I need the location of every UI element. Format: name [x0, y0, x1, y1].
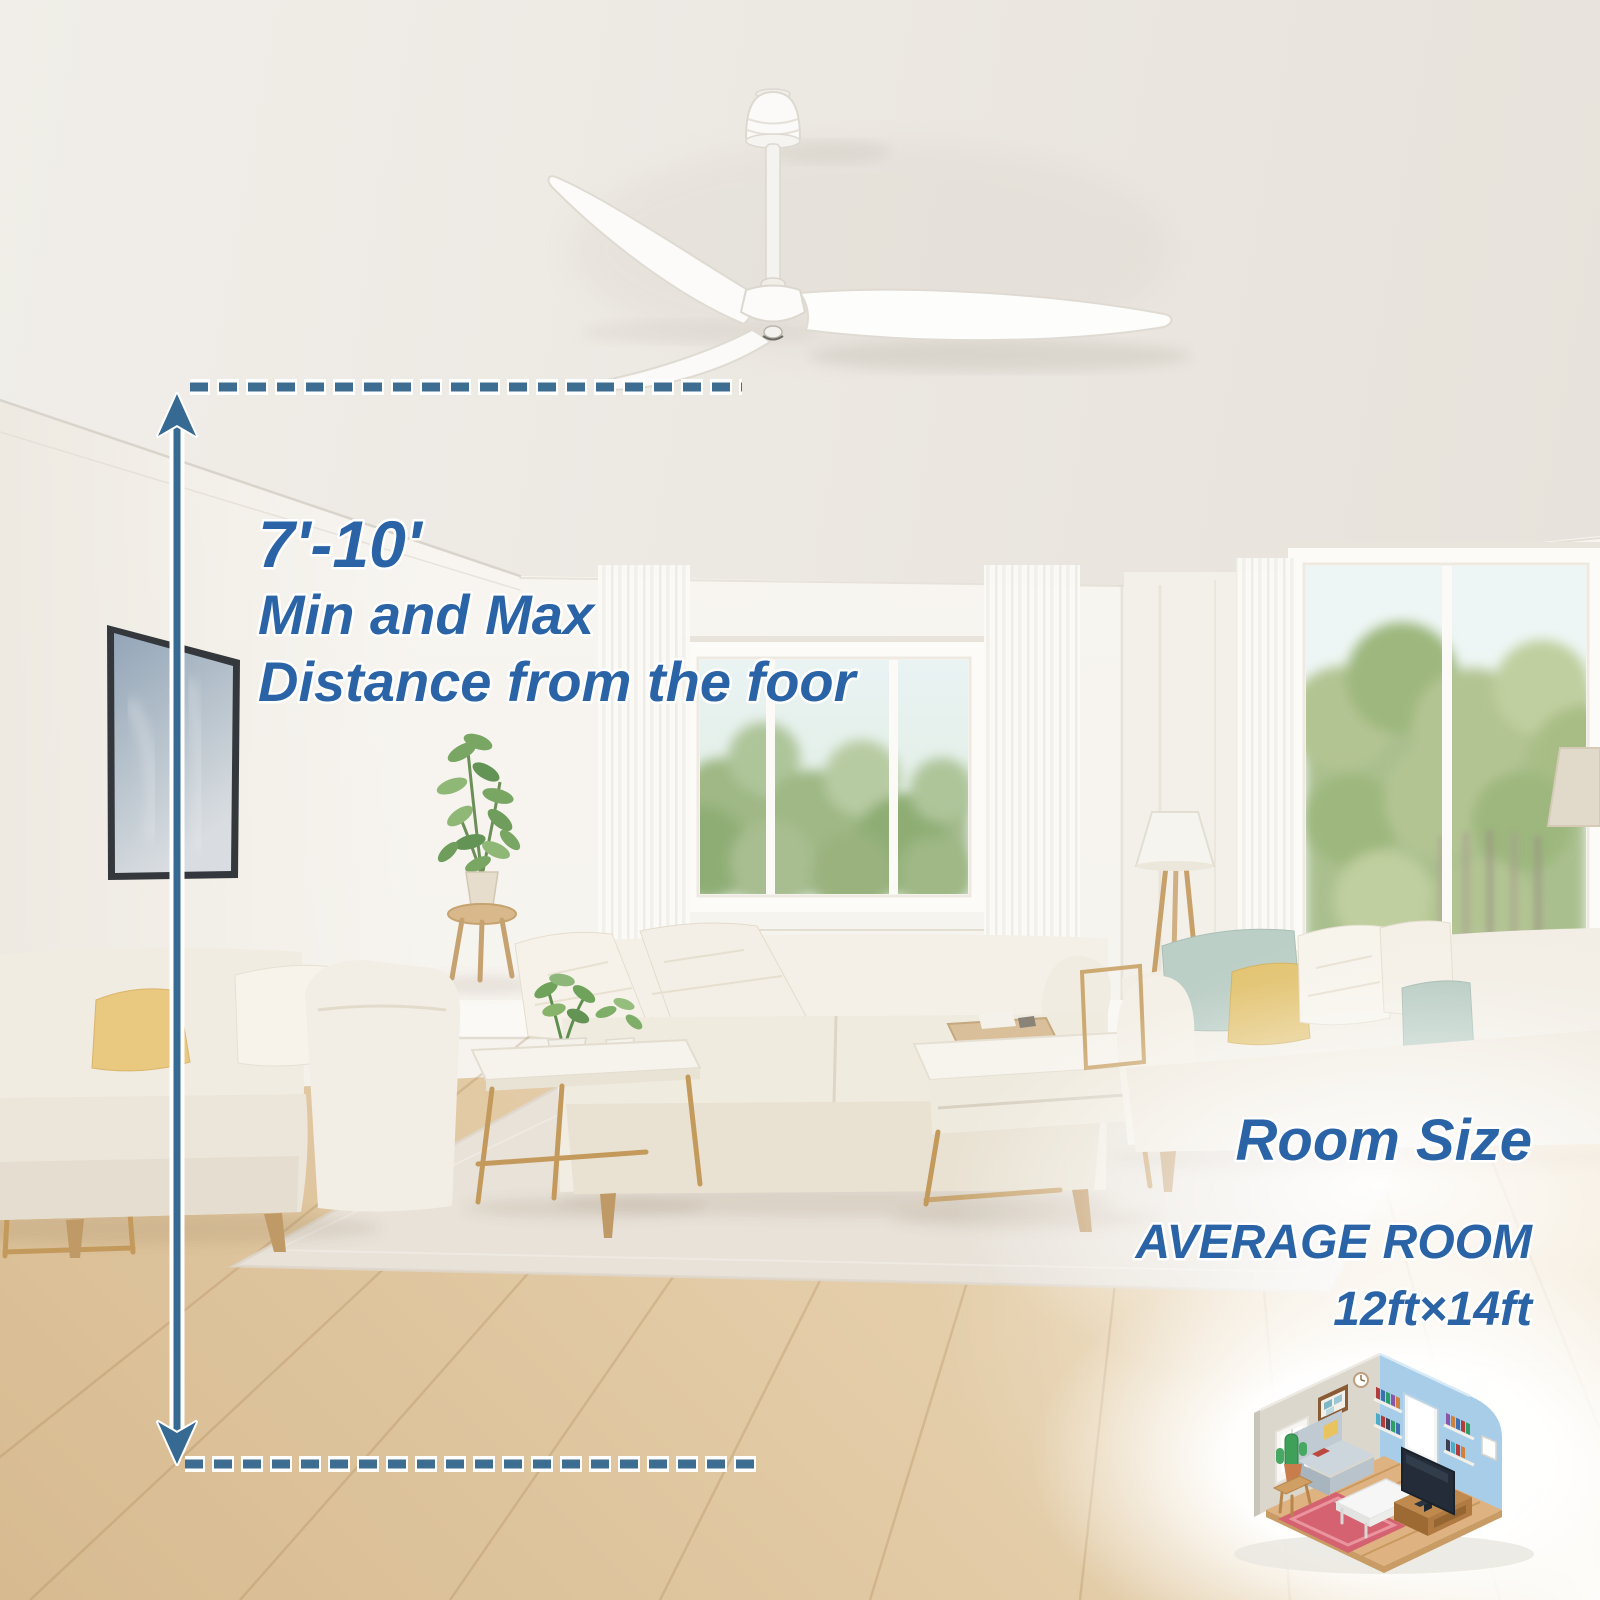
room-size-heading: Room Size — [1236, 1108, 1533, 1173]
distance-label: 7'-10' Min and Max Distance from the foo… — [258, 507, 859, 713]
height-measurement-arrow — [158, 394, 196, 1464]
distance-label-line1: 7'-10' — [258, 507, 424, 581]
average-room-label: AVERAGE ROOM — [1135, 1216, 1533, 1269]
room-dimensions-label: 12ft×14ft — [1333, 1283, 1534, 1336]
product-infographic: 7'-10' Min and Max Distance from the foo… — [0, 0, 1600, 1600]
room-size-label: Room Size AVERAGE ROOM 12ft×14ft — [1135, 1108, 1534, 1336]
distance-label-line2: Min and Max — [258, 583, 597, 646]
measurement-annotation: 7'-10' Min and Max Distance from the foo… — [0, 0, 1600, 1600]
distance-label-line3: Distance from the foor — [258, 650, 859, 713]
